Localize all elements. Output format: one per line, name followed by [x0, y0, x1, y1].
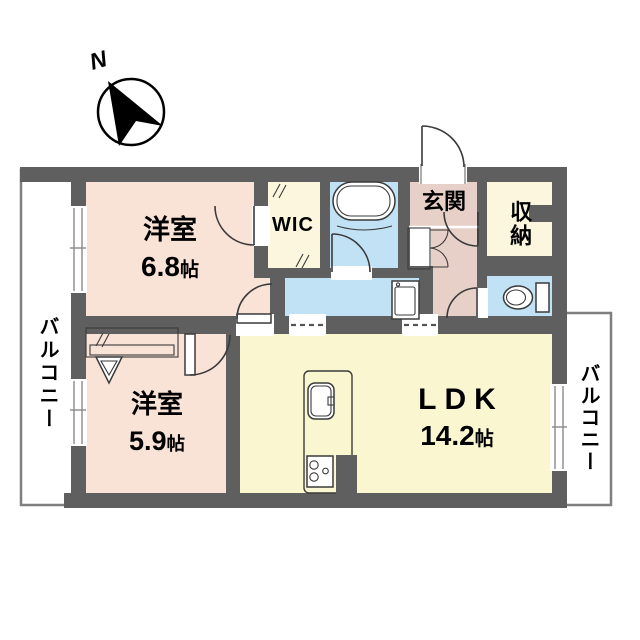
bedroom1-size-unit: 帖: [180, 260, 199, 281]
floor-plan-drawing: [0, 0, 640, 640]
kitchen-sink: [308, 383, 334, 419]
balcony-right-label: バルコニー: [565, 343, 611, 493]
front-door-opening: [419, 164, 467, 184]
bedroom2-size-value: 5.9: [129, 426, 167, 456]
compass: [98, 79, 164, 146]
kitchen-wall-stub: [336, 455, 357, 495]
ldk-size: 14.2帖: [357, 421, 557, 452]
washroom-sliding-door: [289, 314, 326, 336]
bedroom1-size: 6.8帖: [84, 252, 256, 283]
stove: [307, 456, 333, 487]
front-door: [422, 126, 464, 167]
floor-plan: N 洋室 6.8帖 洋室 5.9帖 LDK 14.2帖 WIC 玄関 収納 バル…: [0, 0, 640, 640]
balcony-left-label: バルコニー: [23, 268, 71, 478]
bedroom1-size-value: 6.8: [141, 251, 180, 282]
bedroom2-label: 洋室: [84, 390, 230, 419]
shoe-cabinet: [408, 228, 430, 269]
bedroom2-size-unit: 帖: [167, 433, 185, 454]
ldk-label: LDK: [357, 383, 557, 416]
hallway: [431, 228, 480, 324]
washing-machine: [392, 281, 419, 319]
bedroom2-size: 5.9帖: [84, 427, 230, 457]
toilet-bowl: [504, 283, 550, 312]
ldk-size-value: 14.2: [420, 420, 475, 451]
wic-label: WIC: [264, 214, 322, 236]
bath-door-opening: [331, 266, 372, 280]
ldk-size-unit: 帖: [475, 429, 494, 450]
entrance-label: 玄関: [406, 190, 482, 214]
storage-label: 収納: [504, 188, 534, 260]
room-bedroom1: [84, 178, 256, 320]
bedroom1-label: 洋室: [84, 216, 256, 246]
